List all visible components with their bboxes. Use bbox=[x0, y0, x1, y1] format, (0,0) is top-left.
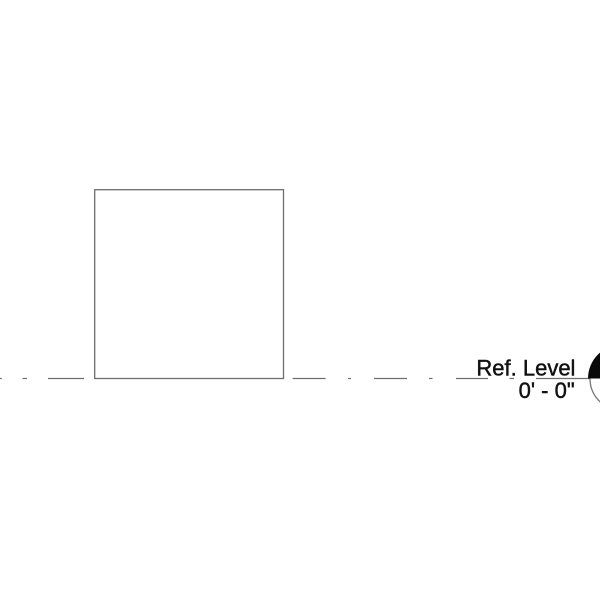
svg-text:0' - 0": 0' - 0" bbox=[519, 378, 575, 403]
svg-text:Ref. Level: Ref. Level bbox=[476, 356, 575, 381]
